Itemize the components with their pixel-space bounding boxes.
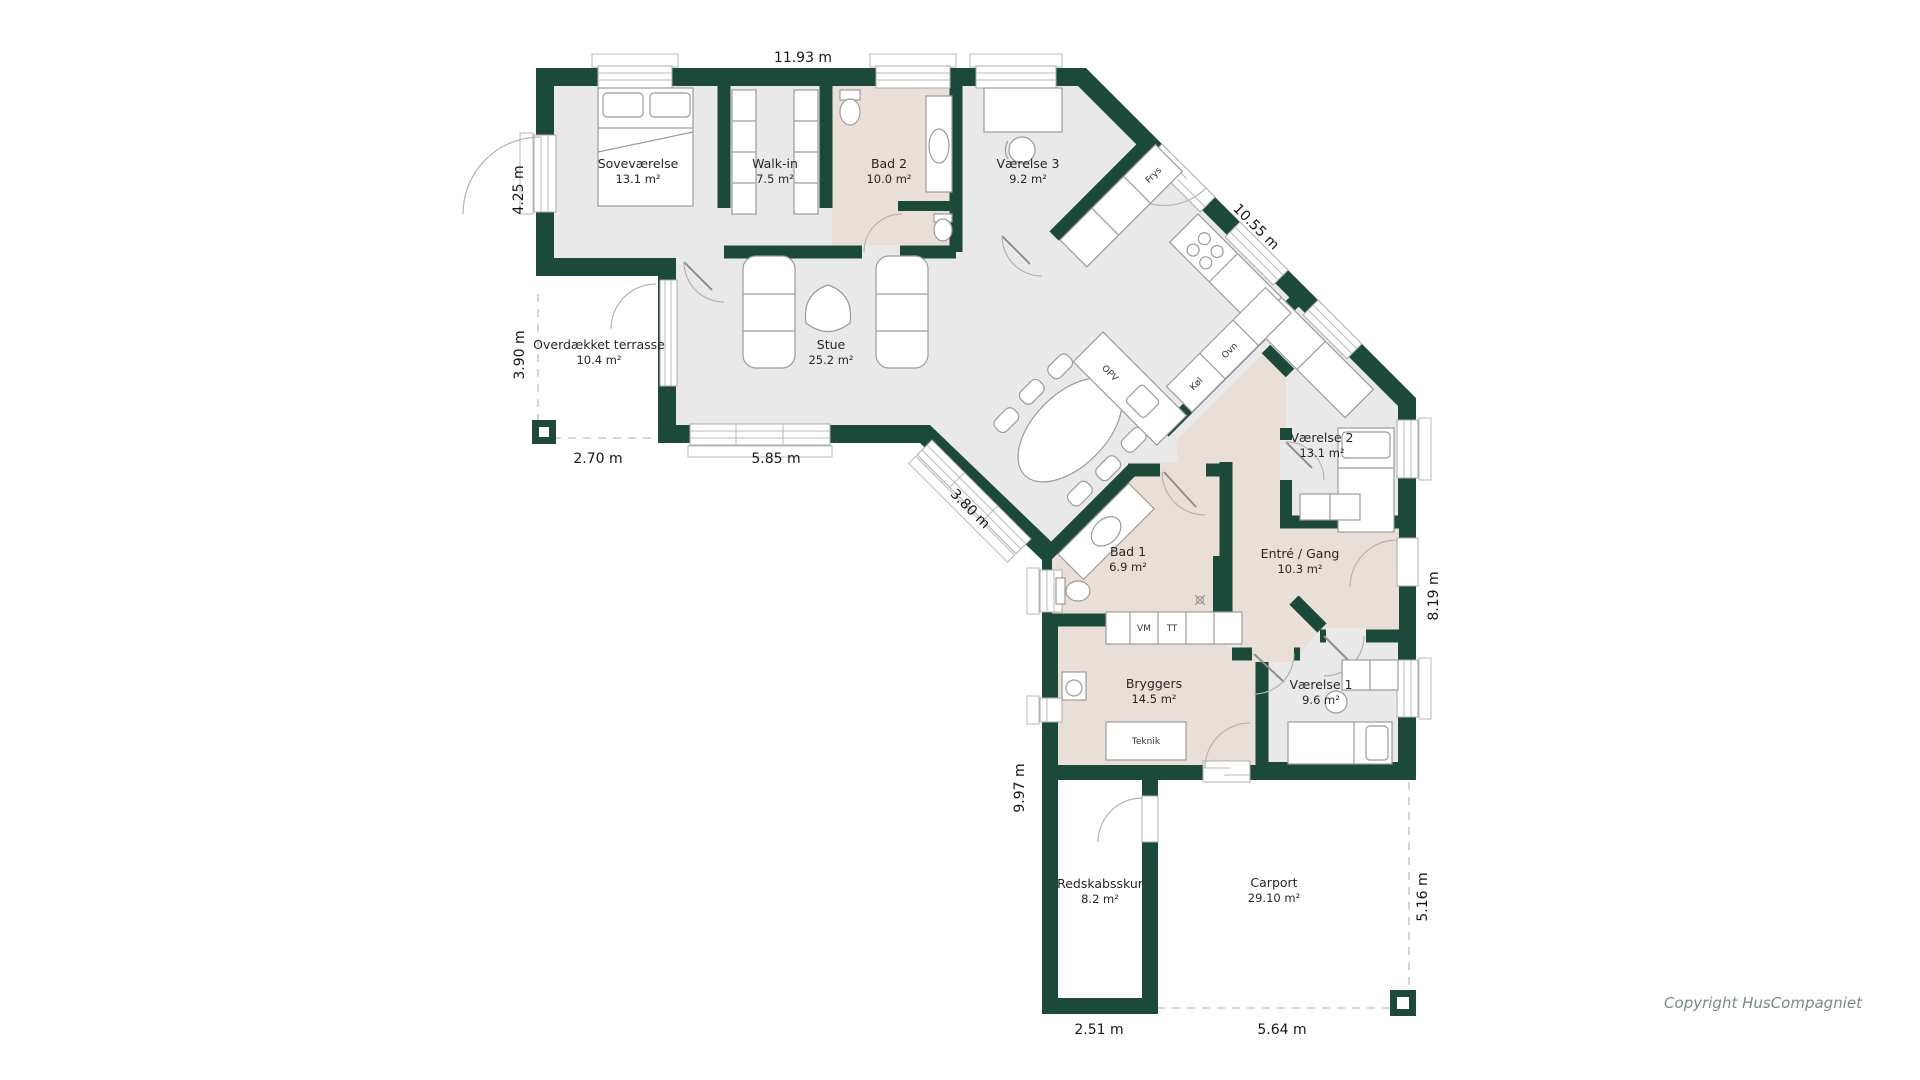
room-area-værelse2: 13.1 m² <box>1299 446 1344 460</box>
room-label-carport: Carport <box>1250 875 1297 890</box>
dimension-label-west-wing: 9.97 m <box>1012 763 1028 812</box>
dimension-label-east-upper: 8.19 m <box>1426 571 1442 620</box>
room-label-entre: Entré / Gang <box>1261 546 1340 561</box>
copyright-text: Copyright HusCompagniet <box>1664 994 1863 1012</box>
room-label-værelse2: Værelse 2 <box>1291 430 1354 445</box>
room-label-stue: Stue <box>817 337 846 352</box>
room-label-walkin: Walk-in <box>752 156 798 171</box>
room-area-redskabsskur: 8.2 m² <box>1081 892 1119 906</box>
room-area-soveværelse: 13.1 m² <box>615 172 660 186</box>
dimension-label-top: 11.93 m <box>774 50 832 66</box>
floor-plan-page: Frys OPV Køl Ovn <box>0 0 1920 1080</box>
room-area-værelse3: 9.2 m² <box>1009 172 1047 186</box>
appliance-label-vm: VM <box>1137 624 1151 634</box>
room-area-terrasse: 10.4 m² <box>576 353 621 367</box>
room-label-værelse1: Værelse 1 <box>1290 677 1353 692</box>
dimension-label-west-upper: 4.25 m <box>511 165 527 214</box>
dimension-label-terrace-bottom: 2.70 m <box>573 451 622 467</box>
room-label-soveværelse: Soveværelse <box>598 156 679 171</box>
floor-plan-canvas: Frys OPV Køl Ovn <box>0 0 1920 1080</box>
room-area-carport: 29.10 m² <box>1248 891 1300 905</box>
dimension-label-shed-bottom: 2.51 m <box>1074 1022 1123 1038</box>
room-area-walkin: 7.5 m² <box>756 172 794 186</box>
room-area-bryggers: 14.5 m² <box>1131 692 1176 706</box>
dimension-label-carport-bottom: 5.64 m <box>1257 1022 1306 1038</box>
room-label-værelse3: Værelse 3 <box>997 156 1060 171</box>
carport-post-center <box>1397 997 1409 1009</box>
furniture-soveværelse <box>598 88 693 206</box>
appliance-label-tt: TT <box>1166 624 1178 634</box>
room-label-bryggers: Bryggers <box>1126 676 1182 691</box>
back-door <box>1203 761 1250 782</box>
room-label-terrasse: Overdækket terrasse <box>533 337 665 352</box>
dimension-label-west-lower: 3.90 m <box>512 330 528 379</box>
room-label-bad1: Bad 1 <box>1110 544 1146 559</box>
room-area-værelse1: 9.6 m² <box>1302 693 1340 707</box>
room-label-bad2: Bad 2 <box>871 156 907 171</box>
room-area-entre: 10.3 m² <box>1277 562 1322 576</box>
room-area-stue: 25.2 m² <box>808 353 853 367</box>
dimension-label-stue-bottom: 5.85 m <box>751 451 800 467</box>
room-area-bad1: 6.9 m² <box>1109 560 1147 574</box>
dimension-label-carport-east: 5.16 m <box>1415 872 1431 921</box>
appliance-label-teknik: Teknik <box>1131 737 1161 747</box>
room-label-redskabsskur: Redskabsskur <box>1057 876 1144 891</box>
entry-door <box>1397 538 1418 586</box>
room-area-bad2: 10.0 m² <box>866 172 911 186</box>
terrace-post-center <box>539 427 549 437</box>
